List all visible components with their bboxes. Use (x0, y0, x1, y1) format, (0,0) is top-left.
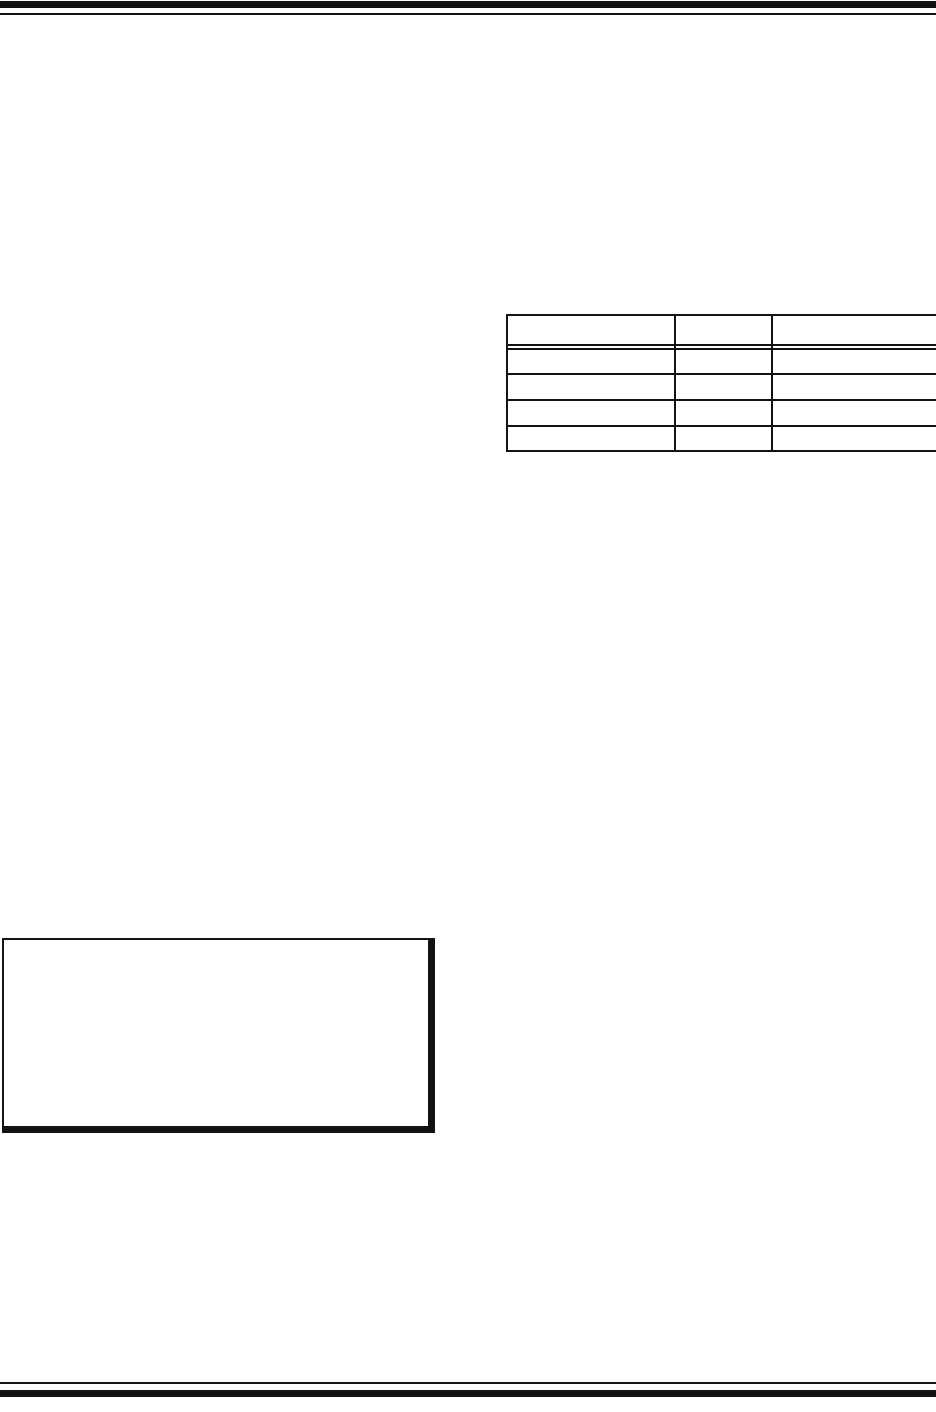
table-header-row (507, 315, 936, 345)
table-cell (675, 400, 772, 426)
table-cell (675, 374, 772, 400)
empty-data-table (506, 314, 936, 452)
table-cell (772, 349, 936, 374)
footer-rule-thin (0, 1382, 936, 1384)
table-cell (675, 426, 772, 451)
table-cell (772, 374, 936, 400)
shadow-note-box (2, 938, 435, 1133)
header-rule-thin (0, 13, 936, 15)
table-header-cell-2 (675, 315, 772, 345)
shadow-note-box-content (4, 940, 428, 1126)
header-rule-thick (0, 1, 936, 8)
footer-rule-thick (0, 1390, 936, 1397)
table-header-cell-3 (772, 315, 936, 345)
table-cell (507, 349, 675, 374)
table-row (507, 426, 936, 451)
table-header-cell-1 (507, 315, 675, 345)
table-row (507, 374, 936, 400)
table-cell (772, 426, 936, 451)
table-cell (507, 374, 675, 400)
table-row (507, 349, 936, 374)
table-cell (507, 400, 675, 426)
table-cell (675, 349, 772, 374)
table-cell (772, 400, 936, 426)
table-row (507, 400, 936, 426)
table-cell (507, 426, 675, 451)
